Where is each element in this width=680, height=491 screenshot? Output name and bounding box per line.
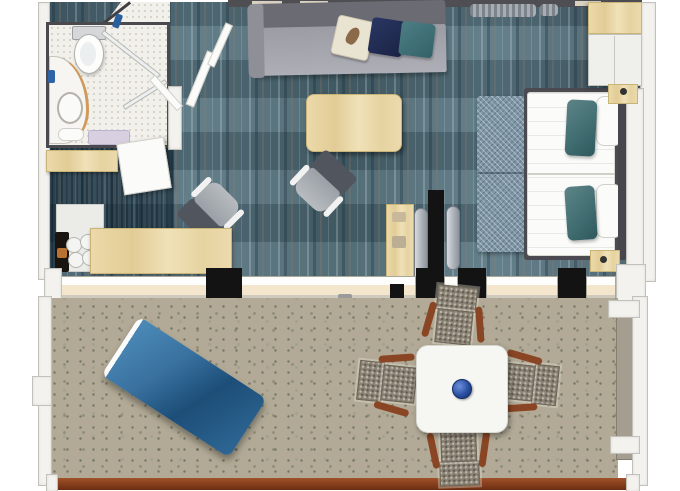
railing-post	[46, 474, 58, 491]
console-item	[392, 236, 406, 248]
lamp	[600, 256, 607, 263]
balcony-railing	[54, 478, 628, 490]
sofa	[247, 0, 449, 80]
wicker-chair	[355, 351, 423, 415]
wardrobe-top	[588, 2, 642, 34]
coffee-maker-detail	[57, 248, 67, 258]
tv-partition-wall	[428, 190, 444, 270]
bed-runner	[477, 96, 527, 252]
bedroom-right-wall	[626, 88, 644, 280]
wall-bracket	[608, 300, 640, 318]
bathroom-door-open	[116, 137, 172, 196]
coffee-table	[306, 94, 402, 152]
blue-toiletry	[48, 70, 55, 83]
runner-seam	[477, 172, 527, 174]
curtain	[540, 4, 558, 16]
teal-pillow	[564, 185, 598, 241]
railing-post	[626, 474, 640, 491]
chair-seat	[434, 308, 473, 346]
console-item	[392, 212, 406, 222]
headboard	[618, 92, 626, 260]
tv	[446, 206, 460, 270]
teal-pillow	[565, 99, 598, 156]
wall-bracket	[610, 436, 640, 454]
pillow-teal	[398, 21, 436, 59]
chair-back	[439, 460, 480, 486]
duvet-seam	[527, 173, 615, 175]
lamp	[620, 88, 627, 95]
sofa-arm	[247, 4, 265, 78]
towel	[58, 128, 84, 141]
bird-print	[344, 25, 363, 46]
wardrobe	[588, 2, 642, 86]
sink	[57, 92, 83, 124]
floor-plan	[0, 0, 680, 491]
balcony-right-band	[632, 296, 648, 486]
wardrobe-door-seam	[614, 36, 615, 84]
luggage-bench	[46, 150, 118, 172]
chair-arm	[378, 353, 414, 362]
curtain	[470, 4, 536, 17]
wicker-chair	[423, 283, 487, 351]
toilet-bowl-inner	[80, 42, 96, 66]
chair-arm	[475, 306, 484, 342]
balcony-wall-pillar	[32, 376, 52, 406]
wardrobe-doors	[588, 34, 642, 86]
chair-seat	[380, 364, 418, 403]
centerpiece-bowl	[452, 379, 472, 399]
